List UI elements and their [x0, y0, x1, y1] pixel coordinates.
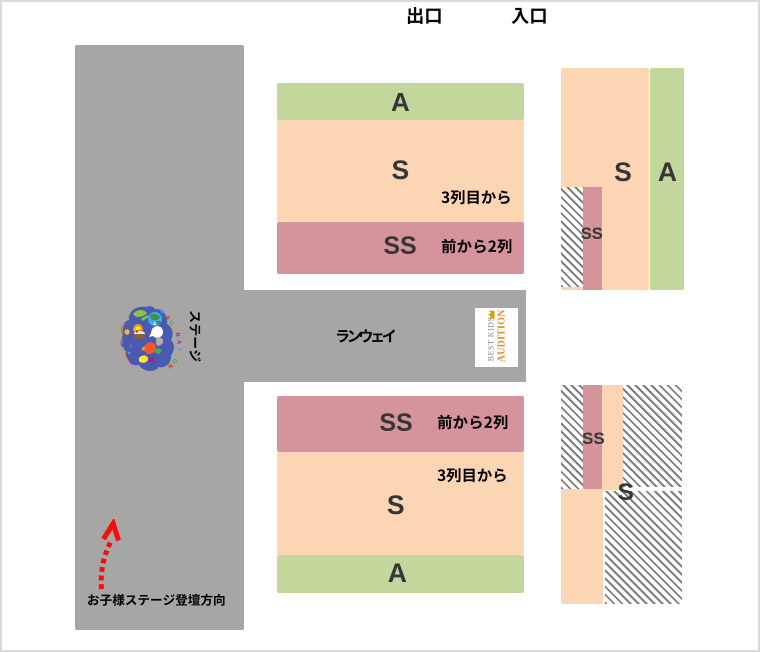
svg-text:I: I — [174, 353, 180, 358]
svg-text:A: A — [175, 340, 181, 345]
svg-text:T: T — [175, 346, 182, 352]
svg-text:N: N — [174, 332, 180, 337]
svg-text:I: I — [171, 327, 177, 331]
